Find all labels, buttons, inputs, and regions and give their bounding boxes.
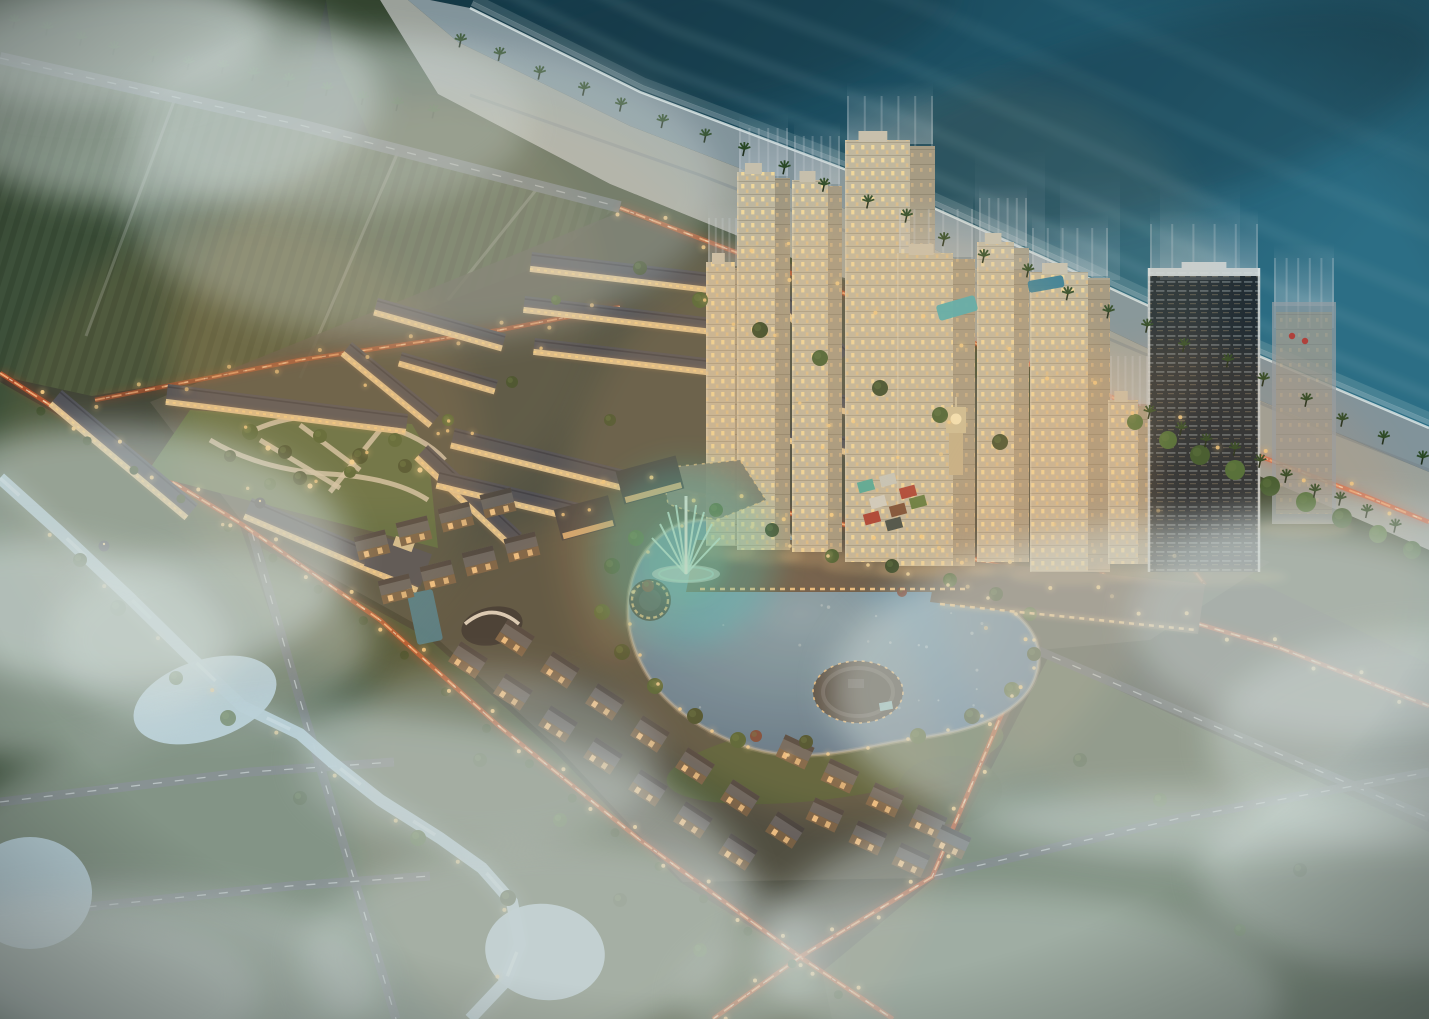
scene-svg [0,0,1429,1019]
vignette [0,0,1429,1019]
overlays [0,0,1429,1019]
aerial-render-stage [0,0,1429,1019]
